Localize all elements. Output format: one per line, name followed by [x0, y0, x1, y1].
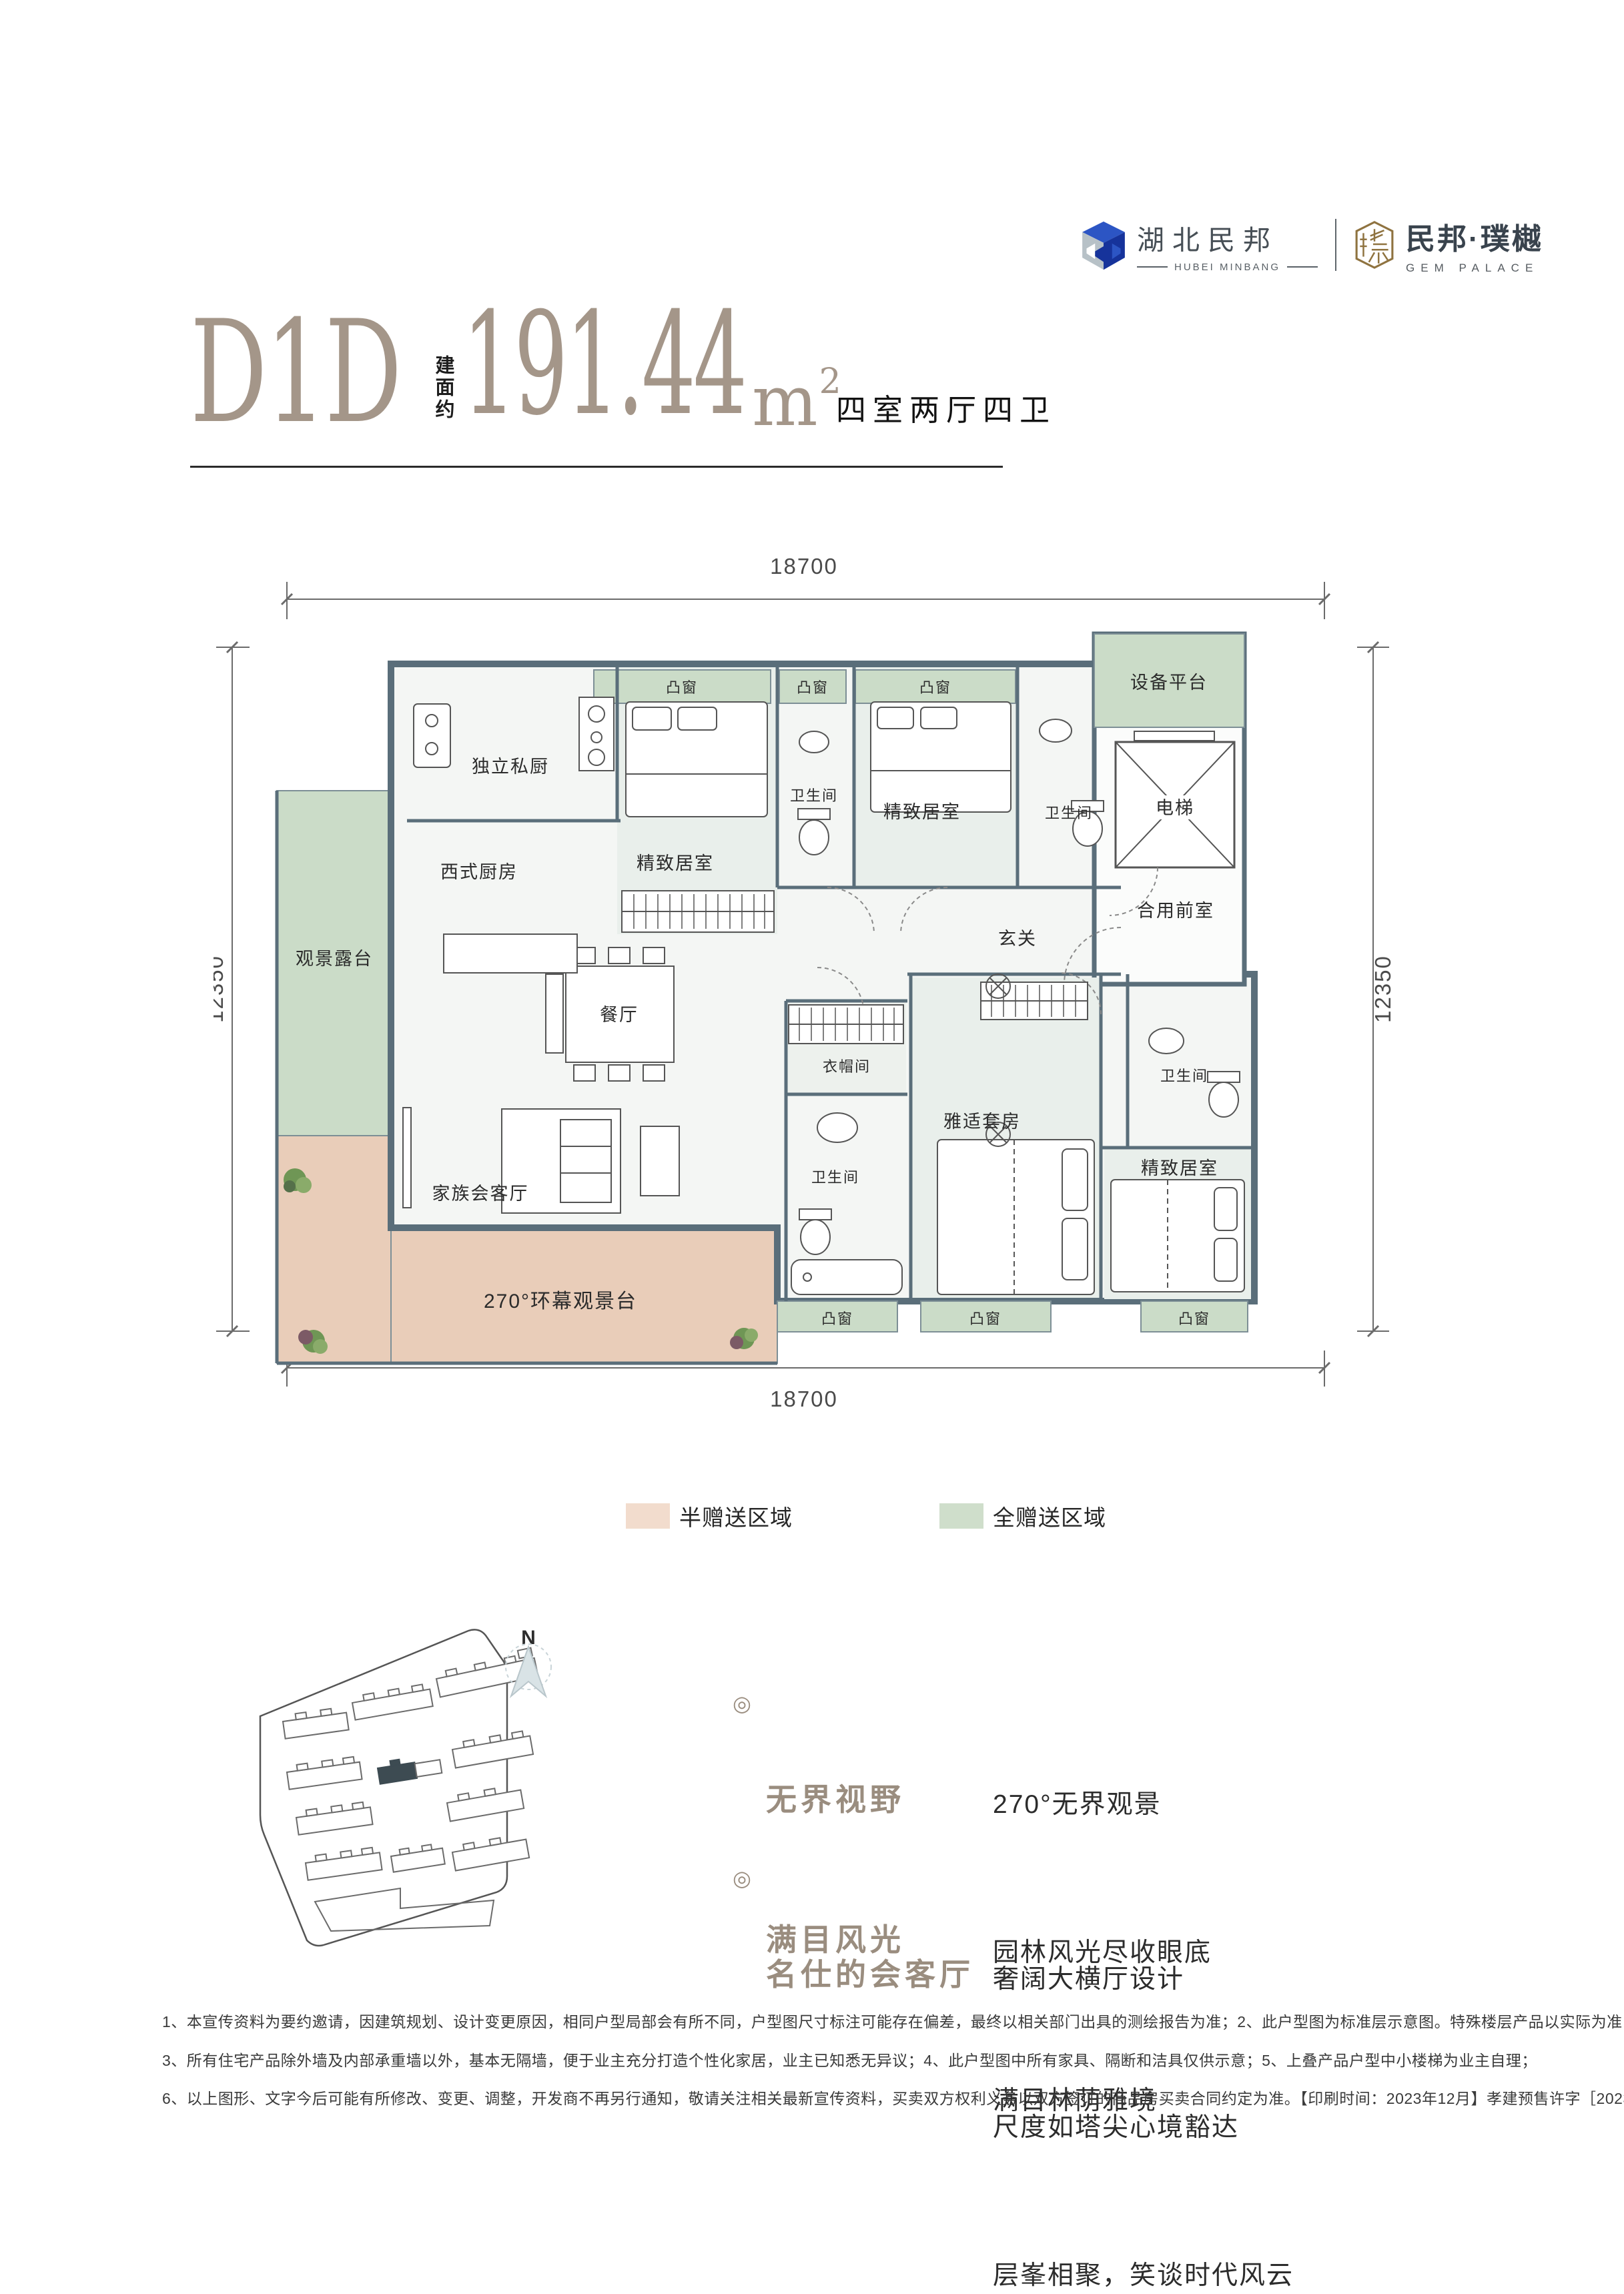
site-amenity-outline — [315, 1888, 494, 1931]
room-label-bedroom1: 精致居室 — [637, 853, 714, 873]
gem-name-cn: 民邦·璞樾 — [1406, 215, 1543, 258]
bed-icon — [626, 702, 767, 817]
toilet-icon — [799, 1209, 831, 1254]
area-label: 建面约 — [432, 355, 454, 421]
bay-window-label: 凸窗 — [797, 679, 829, 696]
room-label-elevator: 电梯 — [1156, 798, 1194, 818]
bed-icon — [937, 1140, 1094, 1294]
area-unit: m2 — [752, 360, 840, 442]
logo-gem-palace: 民邦·璞樾 GEM PALACE — [1354, 215, 1543, 275]
bay-window-label: 凸窗 — [1178, 1310, 1210, 1327]
room-label-bath1: 卫生间 — [790, 787, 838, 804]
room-label-dining: 餐厅 — [600, 1005, 639, 1025]
bay-window-label: 凸窗 — [821, 1310, 853, 1327]
gem-palace-emblem-icon — [1354, 220, 1395, 270]
room-label-private-kitchen: 独立私厨 — [472, 757, 549, 777]
feature2-marker-icon: ◎ — [733, 1866, 751, 1891]
room-label-cloakroom: 衣帽间 — [823, 1058, 871, 1075]
washbasin-icon — [1149, 1028, 1184, 1054]
dimension-top — [282, 582, 1330, 619]
disclaimer-line: 1、本宣传资料为要约邀请，因建筑规划、设计变更原因，相同户型局部会有所不同，户型… — [162, 2003, 1480, 2042]
room-label-front-room: 合用前室 — [1137, 901, 1214, 921]
legend-label-full: 全赠送区域 — [993, 1500, 1106, 1532]
legend-label-half: 半赠送区域 — [679, 1500, 793, 1532]
bay-window-label: 凸窗 — [969, 1310, 1001, 1327]
bathtub-icon — [791, 1260, 902, 1294]
logo-hubei-minbang: 湖北民邦 HUBEI MINBANG — [1081, 218, 1318, 273]
title-underline — [190, 466, 1003, 468]
dash-right — [1287, 266, 1318, 268]
tv-cabinet-icon — [403, 1108, 411, 1208]
room-label-bedroom2: 精致居室 — [883, 802, 961, 822]
logo-divider — [1335, 219, 1336, 271]
room-label-view-terrace: 观景露台 — [296, 949, 373, 969]
elevator-label-group: 电梯 — [1146, 795, 1204, 819]
plan-code: D1D — [190, 302, 400, 443]
room-label-bedroom3: 精致居室 — [1141, 1158, 1218, 1178]
site-buildings — [282, 1647, 538, 1931]
dash-left — [1137, 266, 1168, 268]
brochure-page: 湖北民邦 HUBEI MINBANG 民邦·璞樾 GEM PALACE D1D … — [0, 0, 1624, 2294]
legend: 半赠送区域 全赠送区域 — [626, 1500, 1106, 1532]
room-label-foyer: 玄关 — [998, 929, 1037, 949]
site-map: N — [240, 1615, 587, 1995]
feature1-marker-icon: ◎ — [733, 1691, 751, 1716]
site-highlighted-building — [377, 1753, 442, 1784]
room-label-bath4: 卫生间 — [1160, 1068, 1208, 1084]
toilet-icon — [1208, 1072, 1240, 1117]
disclaimer-line: 6、以上图形、文字今后可能有所修改、变更、调整，开发商不再另行通知，敬请关注相关… — [162, 2080, 1480, 2119]
legend-swatch-half — [626, 1503, 670, 1529]
dim-right-label: 12350 — [1370, 955, 1395, 1023]
washbasin-icon — [799, 731, 829, 753]
minbang-name-en: HUBEI MINBANG — [1174, 262, 1280, 273]
legend-swatch-full — [939, 1503, 983, 1529]
bay-window-label: 凸窗 — [666, 679, 698, 696]
title-block: D1D 建面约 191.44 m2 四室两厅四卫 — [190, 302, 1024, 475]
room-label-family-living: 家族会客厅 — [432, 1184, 529, 1204]
room-label-suite: 雅适套房 — [943, 1112, 1021, 1132]
disclaimer: 1、本宣传资料为要约邀请，因建筑规划、设计变更原因，相同户型局部会有所不同，户型… — [162, 2003, 1480, 2119]
dim-top-label: 18700 — [770, 554, 838, 579]
gem-name-en: GEM PALACE — [1406, 262, 1543, 275]
bed-icon — [1111, 1180, 1244, 1292]
wardrobe-icon — [789, 1005, 903, 1044]
dim-left-label: 12350 — [214, 955, 228, 1023]
wardrobe-icon — [622, 891, 774, 932]
kitchen-island-icon — [444, 934, 577, 973]
minbang-cube-icon — [1081, 220, 1126, 270]
washbasin-icon — [817, 1113, 857, 1142]
room-label-western-kitchen: 西式厨房 — [440, 862, 518, 882]
sink-icon — [414, 704, 450, 767]
washbasin-icon — [1040, 719, 1072, 742]
room-label-wrap-terrace: 270°环幕观景台 — [484, 1290, 637, 1312]
toilet-icon — [798, 809, 830, 855]
disclaimer-line: 3、所有住宅产品除外墙及内部承重墙以外，基本无隔墙，便于业主充分打造个性化家居，… — [162, 2042, 1480, 2080]
floor-plan: 18700 18700 12350 12350 — [214, 507, 1414, 1455]
room-label-bath3: 卫生间 — [811, 1169, 859, 1186]
bay-window-label: 凸窗 — [919, 679, 951, 696]
area-value: 191.44 — [462, 294, 745, 435]
header-logos: 湖北民邦 HUBEI MINBANG 民邦·璞樾 GEM PALACE — [1081, 215, 1543, 275]
minbang-name-cn: 湖北民邦 — [1137, 218, 1318, 258]
room-label-equipment: 设备平台 — [1130, 673, 1208, 693]
bed-icon — [871, 702, 1011, 812]
room-label-bath2: 卫生间 — [1045, 805, 1093, 821]
dim-bottom-label: 18700 — [770, 1387, 838, 1411]
room-layout-text: 四室两厅四卫 — [836, 386, 1056, 429]
stove-icon — [579, 697, 614, 771]
